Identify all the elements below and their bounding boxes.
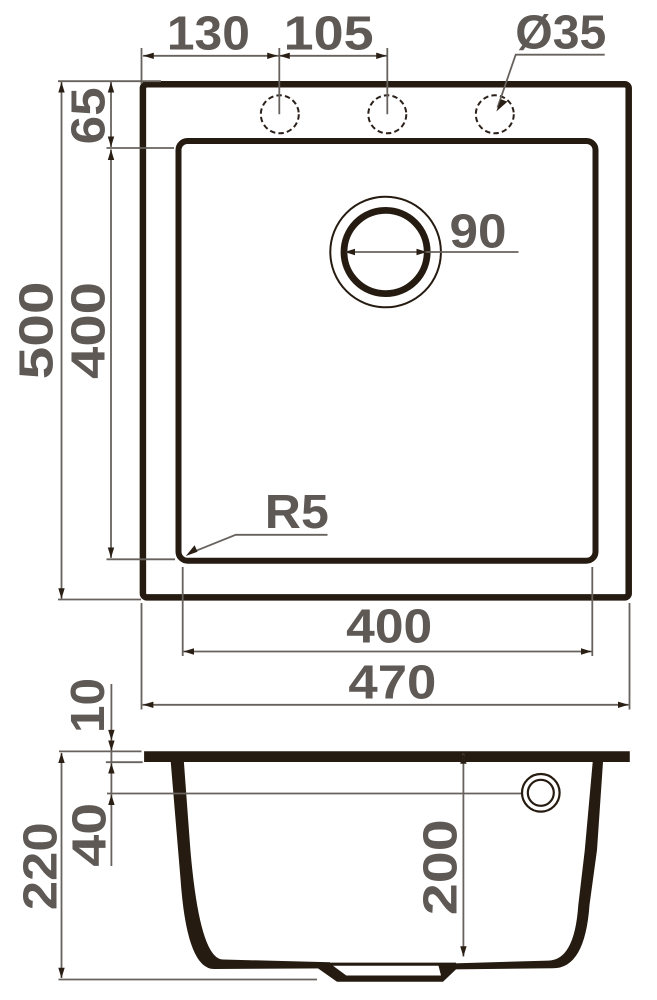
svg-text:40: 40 [63, 803, 116, 867]
svg-text:200: 200 [415, 819, 468, 915]
svg-text:Ø35: Ø35 [515, 7, 606, 60]
svg-text:500: 500 [11, 281, 64, 379]
svg-text:470: 470 [348, 657, 436, 710]
svg-text:400: 400 [346, 601, 432, 654]
svg-text:65: 65 [62, 87, 115, 144]
svg-text:130: 130 [167, 8, 250, 61]
svg-text:400: 400 [62, 282, 115, 379]
svg-text:10: 10 [62, 678, 115, 733]
svg-text:90: 90 [450, 205, 507, 258]
svg-text:220: 220 [15, 822, 68, 910]
svg-text:R5: R5 [265, 486, 329, 539]
svg-text:105: 105 [284, 8, 374, 61]
